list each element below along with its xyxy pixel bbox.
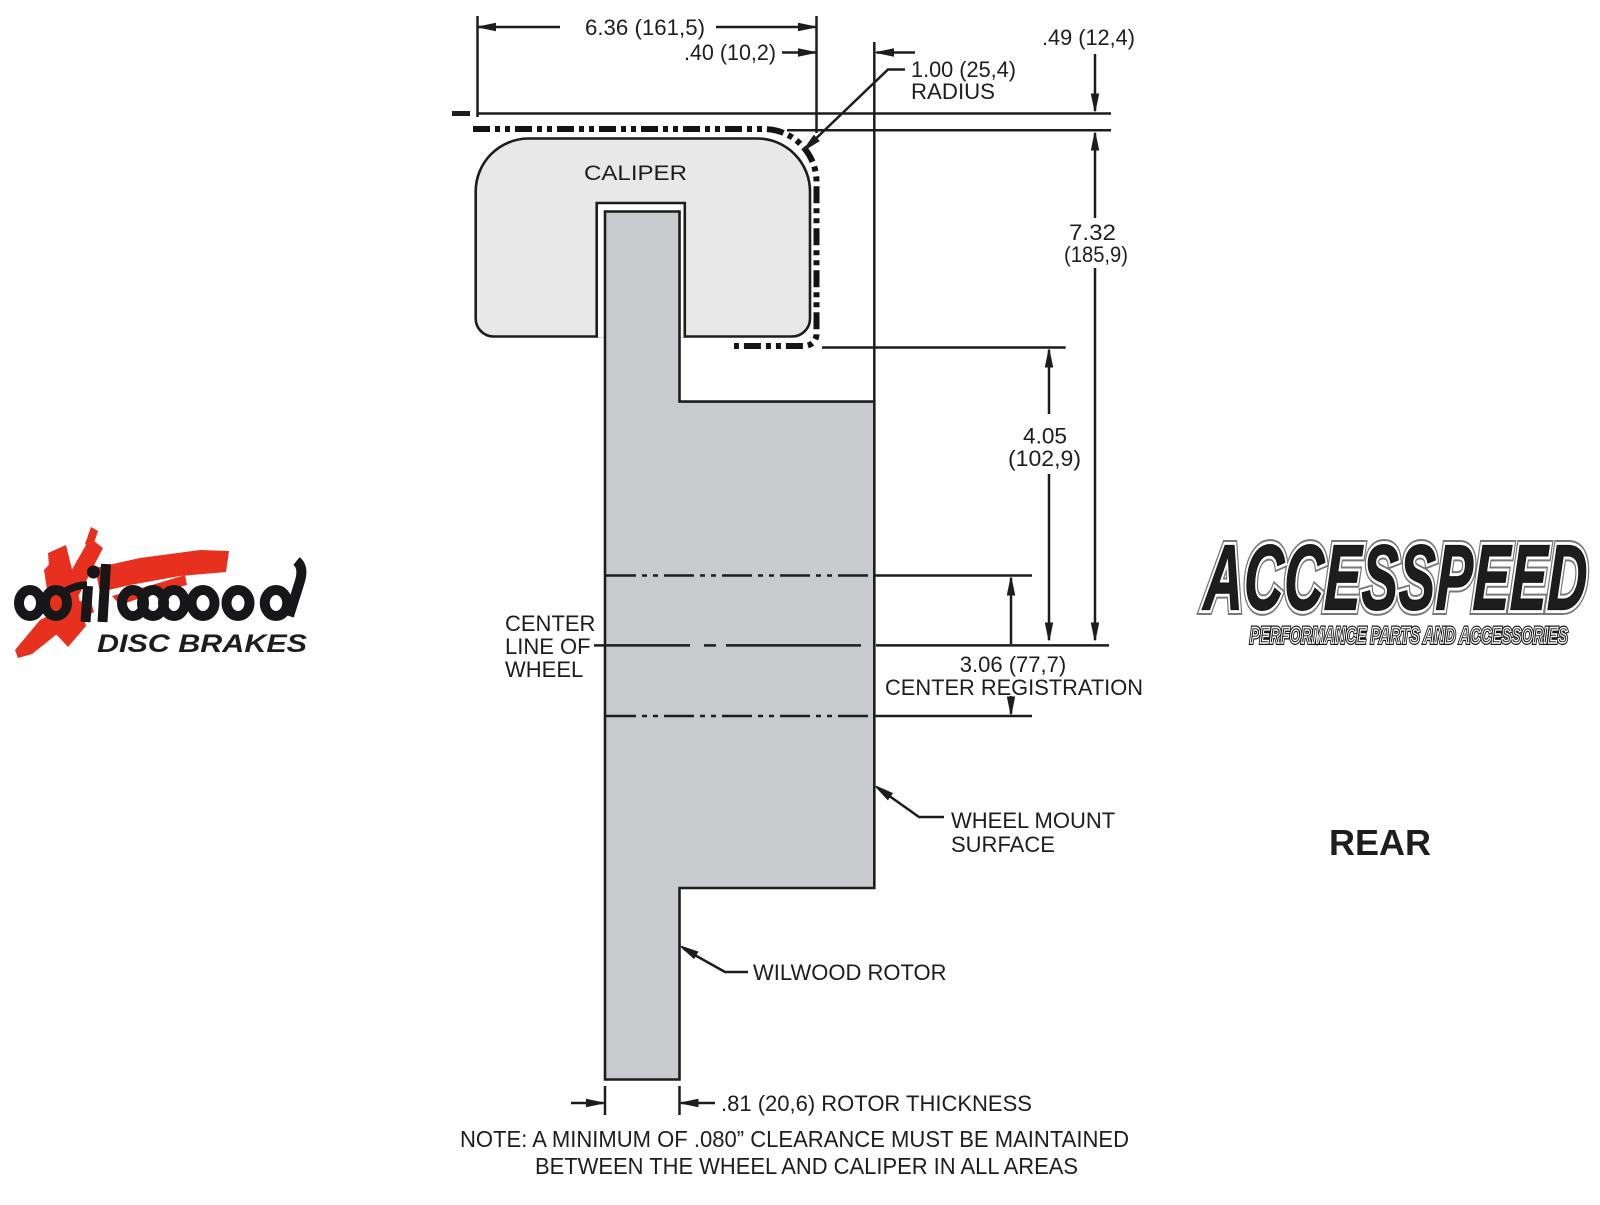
svg-text:SURFACE: SURFACE bbox=[951, 832, 1055, 857]
svg-text:REAR: REAR bbox=[1329, 822, 1431, 863]
svg-text:LINE OF: LINE OF bbox=[505, 634, 591, 659]
svg-text:BETWEEN THE WHEEL AND CALIPER: BETWEEN THE WHEEL AND CALIPER IN ALL ARE… bbox=[535, 1153, 1078, 1179]
svg-text:3.06 (77,7): 3.06 (77,7) bbox=[960, 652, 1066, 677]
svg-text:4.05: 4.05 bbox=[1023, 424, 1067, 449]
svg-text:(102,9): (102,9) bbox=[1008, 446, 1081, 471]
svg-text:CALIPER: CALIPER bbox=[584, 162, 687, 185]
svg-text:ACCESSPEED: ACCESSPEED bbox=[1201, 527, 1590, 630]
svg-text:WHEEL: WHEEL bbox=[505, 657, 583, 682]
svg-text:PERFORMANCE PARTS AND ACCESSOR: PERFORMANCE PARTS AND ACCESSORIES bbox=[1250, 623, 1568, 648]
svg-text:.81 (20,6) ROTOR THICKNESS: .81 (20,6) ROTOR THICKNESS bbox=[721, 1091, 1032, 1116]
svg-text:.49 (12,4): .49 (12,4) bbox=[1042, 25, 1135, 50]
svg-text:WHEEL MOUNT: WHEEL MOUNT bbox=[951, 808, 1115, 833]
svg-text:WILWOOD ROTOR: WILWOOD ROTOR bbox=[753, 960, 947, 985]
svg-text:.40 (10,2): .40 (10,2) bbox=[684, 40, 776, 65]
svg-text:CENTER REGISTRATION: CENTER REGISTRATION bbox=[885, 675, 1143, 700]
svg-text:CENTER: CENTER bbox=[505, 611, 595, 636]
svg-text:RADIUS: RADIUS bbox=[911, 79, 995, 104]
svg-text:NOTE: A MINIMUM OF .080” CLEAR: NOTE: A MINIMUM OF .080” CLEARANCE MUST … bbox=[460, 1126, 1129, 1152]
svg-text:(185,9): (185,9) bbox=[1064, 242, 1128, 267]
svg-text:6.36 (161,5): 6.36 (161,5) bbox=[585, 15, 705, 40]
svg-text:DISC BRAKES: DISC BRAKES bbox=[97, 630, 307, 658]
